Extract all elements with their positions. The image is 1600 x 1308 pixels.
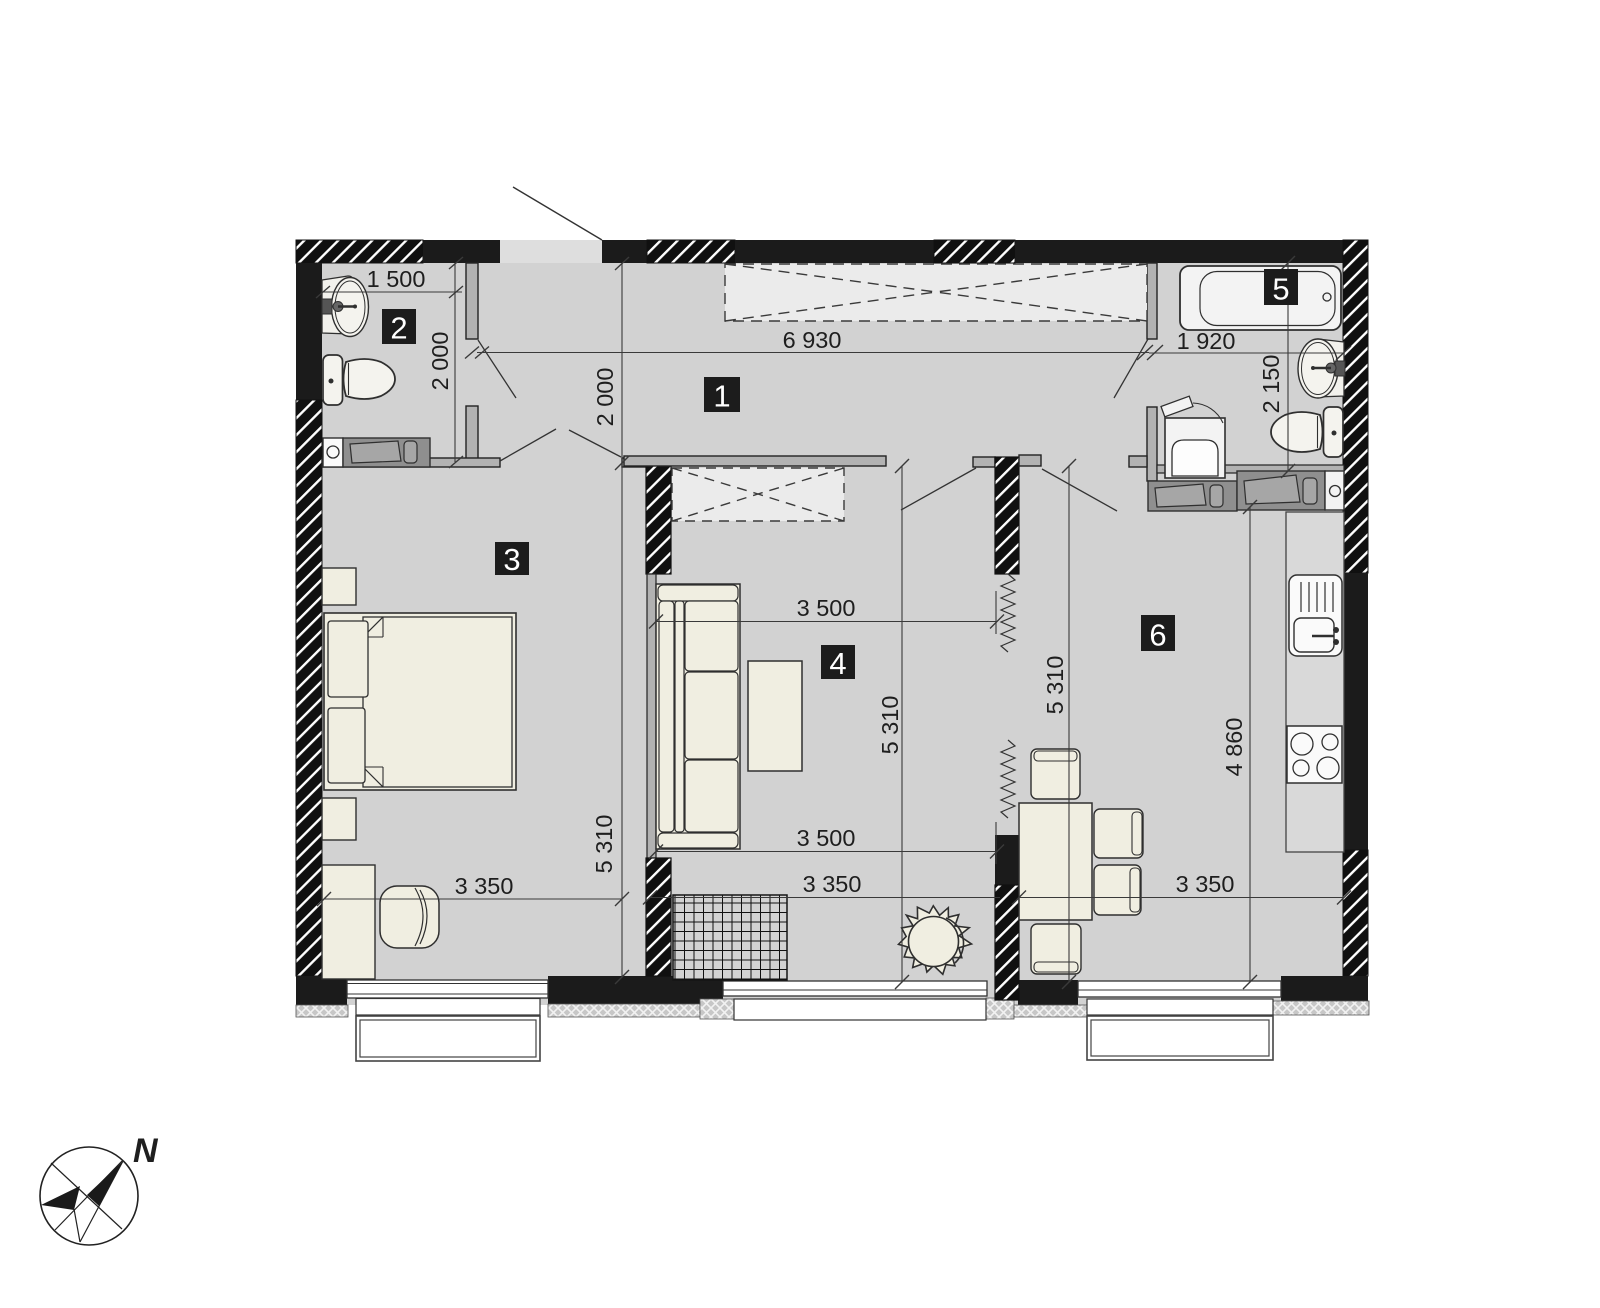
svg-text:1 500: 1 500 — [367, 266, 426, 292]
svg-text:3 350: 3 350 — [803, 871, 862, 897]
svg-text:6: 6 — [1149, 618, 1166, 653]
svg-text:N: N — [133, 1132, 159, 1170]
svg-text:1 920: 1 920 — [1177, 328, 1236, 354]
svg-text:3: 3 — [503, 542, 520, 577]
svg-text:2: 2 — [390, 311, 407, 346]
svg-text:3 500: 3 500 — [797, 825, 856, 851]
svg-text:5 310: 5 310 — [591, 815, 617, 874]
svg-text:3 350: 3 350 — [455, 873, 514, 899]
svg-text:5: 5 — [1272, 272, 1289, 307]
svg-text:3 500: 3 500 — [797, 595, 856, 621]
svg-text:5 310: 5 310 — [1042, 656, 1068, 715]
svg-text:3 350: 3 350 — [1176, 871, 1235, 897]
svg-text:6 930: 6 930 — [783, 327, 842, 353]
svg-text:2 000: 2 000 — [592, 368, 618, 427]
svg-text:2 150: 2 150 — [1258, 355, 1284, 414]
svg-text:4 860: 4 860 — [1221, 718, 1247, 777]
svg-text:2 000: 2 000 — [427, 332, 453, 391]
svg-text:4: 4 — [829, 646, 846, 681]
svg-text:5 310: 5 310 — [877, 696, 903, 755]
svg-text:1: 1 — [713, 379, 730, 414]
